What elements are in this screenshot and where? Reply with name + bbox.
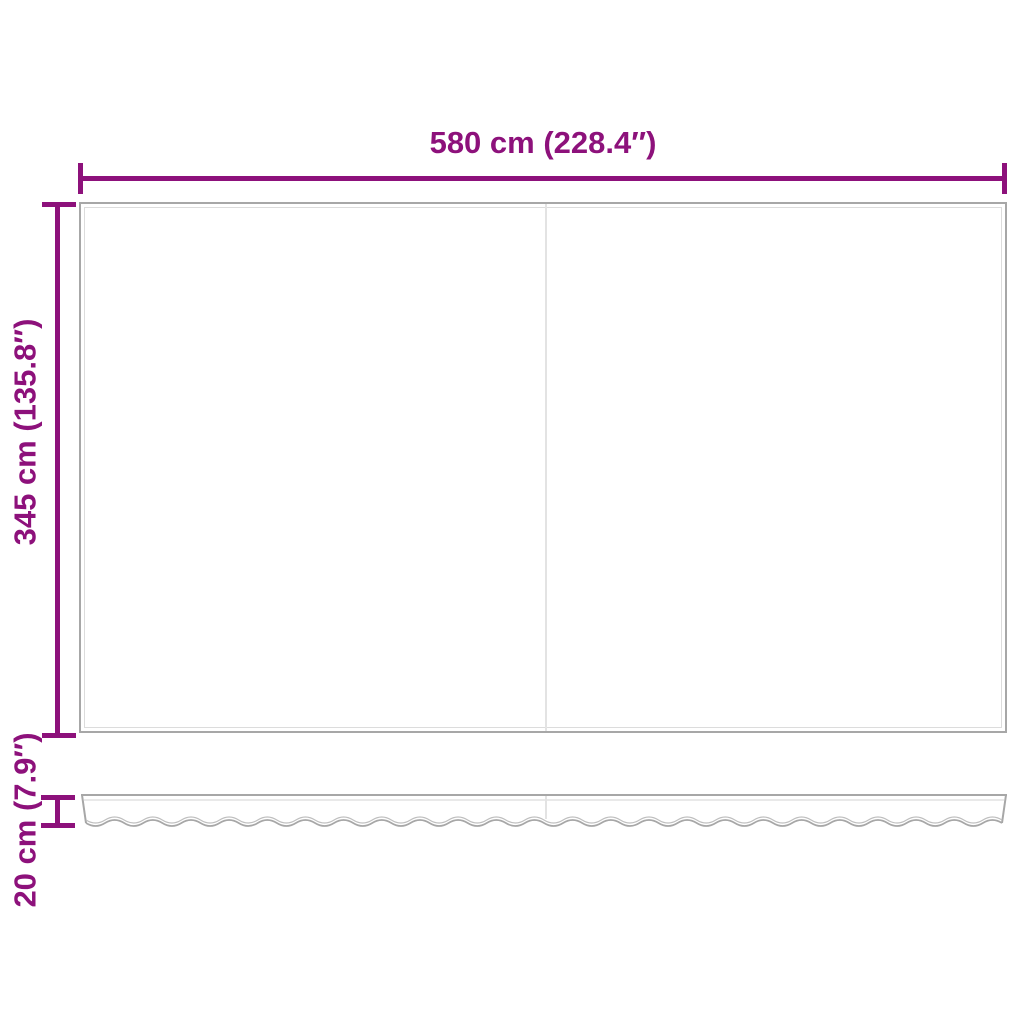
fabric-panel-inner-hem (84, 207, 1002, 728)
valance-strip (76, 789, 1012, 845)
height-dimension-label: 345 cm (135.8″) (10, 319, 41, 546)
width-dimension-line (78, 176, 1007, 181)
valance-dimension-label: 20 cm (7.9″) (10, 732, 41, 907)
width-dimension-label: 580 cm (228.4″) (79, 127, 1007, 158)
fabric-panel (79, 202, 1007, 733)
valance-dimension-tick-bottom (41, 823, 75, 828)
height-dimension-tick-top (42, 202, 76, 207)
valance-dimension-tick-top (41, 795, 75, 800)
fabric-panel-center-seam (545, 204, 547, 731)
valance-left-edge (82, 795, 86, 823)
valance-scallop-outer (86, 820, 1002, 826)
dimension-diagram: 580 cm (228.4″) 345 cm (135.8″) 20 cm (7… (0, 0, 1024, 1024)
height-dimension-line (55, 202, 60, 738)
valance-right-edge (1002, 795, 1006, 823)
width-dimension-tick-left (78, 163, 83, 194)
height-dimension-tick-bottom (42, 733, 76, 738)
width-dimension-tick-right (1002, 163, 1007, 194)
